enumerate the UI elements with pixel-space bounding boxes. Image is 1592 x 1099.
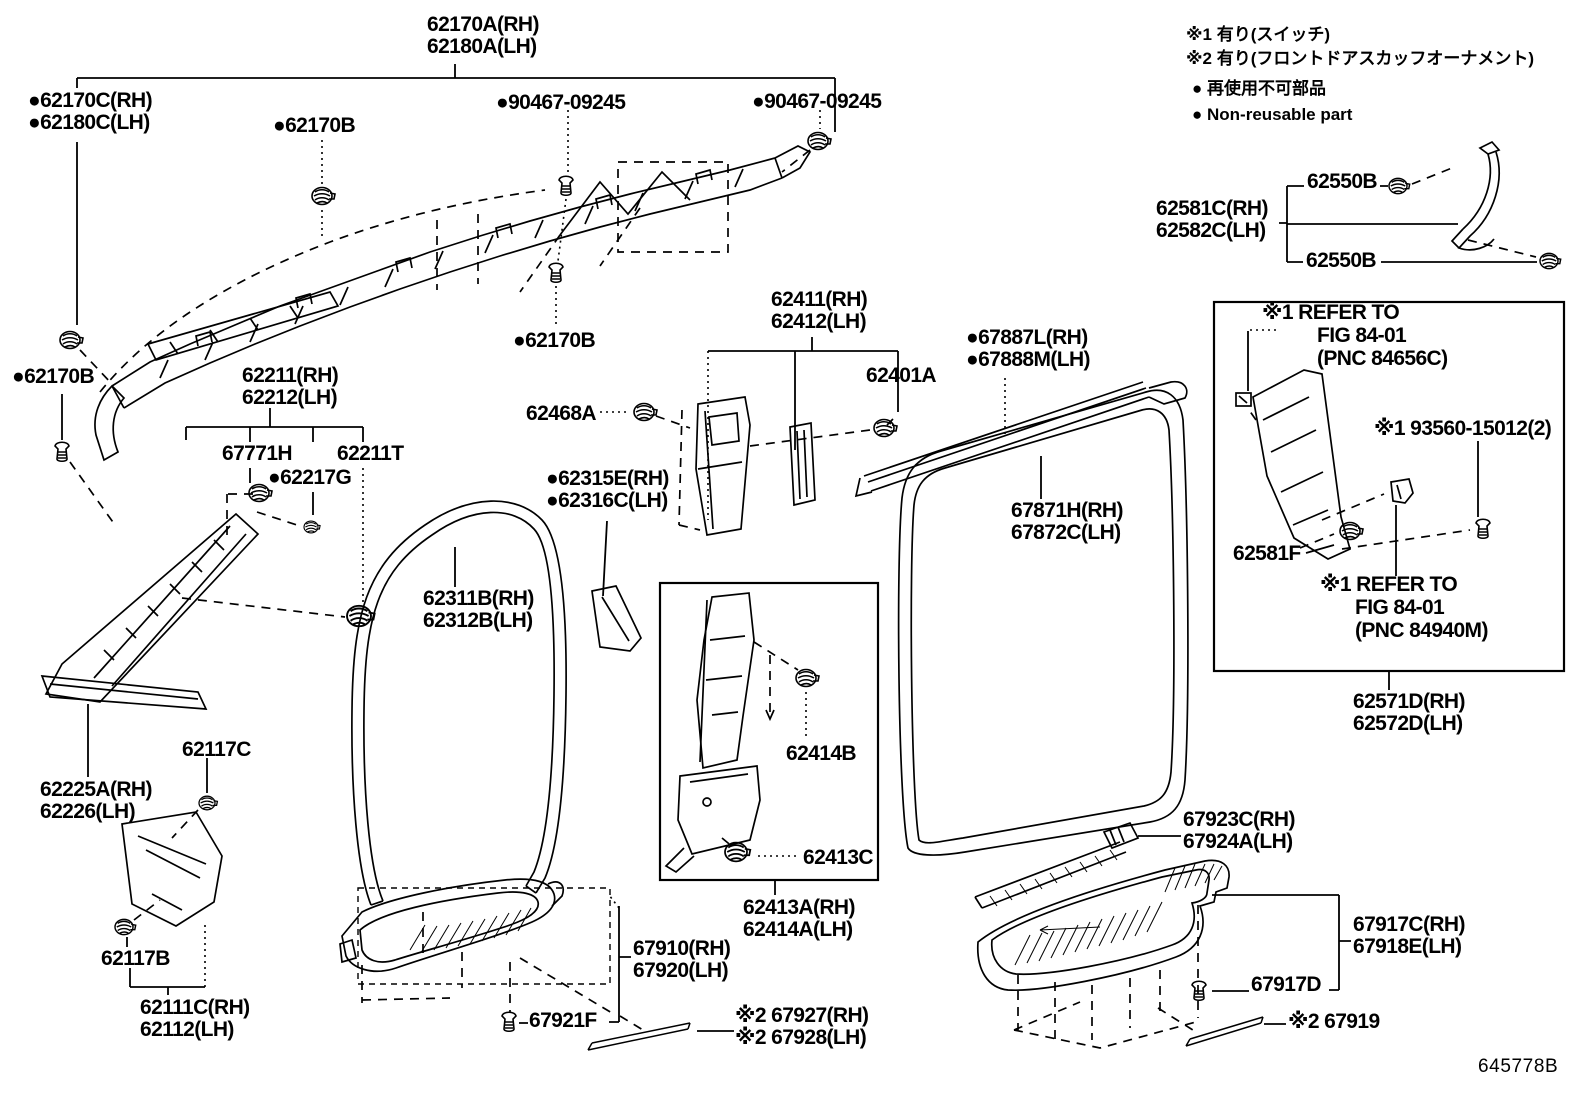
part-label-62211: 62211(RH) 62212(LH): [242, 365, 338, 409]
part-label-62225a: 62225A(RH) 62226(LH): [40, 779, 152, 823]
part-label-62117b: 62117B: [101, 948, 170, 970]
screw-icon: [549, 263, 563, 282]
grommet-clip-icon: [199, 796, 217, 810]
grommet-clip-icon: [312, 188, 335, 205]
front-door-opening-trim: [352, 501, 566, 905]
legend-note-note-jp: ● 再使用不可部品: [1192, 76, 1326, 102]
part-label-67921f: 67921F: [529, 1010, 597, 1032]
part-label-90467-left: ●90467-09245: [496, 92, 625, 114]
door-sill-strips: [588, 1017, 1263, 1050]
legend-note-note-switch: ※1 有り(スイッチ): [1186, 22, 1330, 48]
part-label-62581f: 62581F: [1233, 543, 1301, 565]
screw-icon: [1192, 981, 1206, 1000]
part-label-62111c: 62111C(RH) 62112(LH): [140, 997, 250, 1041]
part-label-62170a: 62170A(RH) 62180A(LH): [427, 14, 539, 58]
part-label-62413a: 62413A(RH) 62414A(LH): [743, 897, 855, 941]
grommet-clip-icon: [808, 133, 831, 150]
part-label-62315e: ●62315E(RH) ●62316C(LH): [546, 468, 669, 512]
part-label-67927: ※2 67927(RH) ※2 67928(LH): [735, 1005, 868, 1049]
part-label-67887l: ●67887L(RH) ●67888M(LH): [966, 327, 1090, 371]
part-label-62170b-left: ●62170B: [12, 366, 94, 388]
center-pillar-upper-trim: [696, 397, 815, 535]
center-pillar-lower-box: [660, 583, 878, 880]
grommet-clip-icon: [304, 521, 320, 533]
part-label-62211t: 62211T: [337, 443, 403, 465]
part-label-62581c: 62581C(RH) 62582C(LH): [1156, 198, 1268, 242]
part-label-62550b-top: 62550B: [1307, 171, 1377, 193]
screw-icon: [55, 442, 69, 461]
grommet-clip-icon: [874, 420, 897, 437]
part-label-refer1-1: ※1 REFER TO: [1262, 302, 1399, 324]
part-label-62170b-mid: ●62170B: [513, 330, 595, 352]
part-label-62117c: 62117C: [182, 739, 251, 761]
roof-side-garnish-assembly: [95, 146, 810, 460]
grommet-clip-icon: [1389, 178, 1410, 193]
legend-note-note-en: ● Non-reusable part: [1192, 102, 1352, 128]
grommet-clip-icon: [1340, 523, 1363, 540]
part-label-62311b: 62311B(RH) 62312B(LH): [423, 588, 534, 632]
leader-lines: [62, 64, 1537, 1031]
grommet-clip-icon: [60, 332, 83, 349]
part-label-62170b-top: ●62170B: [273, 115, 355, 137]
part-label-refer2-3: (PNC 84940M): [1355, 620, 1488, 642]
part-label-62411: 62411(RH) 62412(LH): [771, 289, 867, 333]
part-label-refer2-1: ※1 REFER TO: [1320, 574, 1457, 596]
part-label-67871h: 67871H(RH) 67872C(LH): [1011, 500, 1123, 544]
part-label-62170c: ●62170C(RH) ●62180C(LH): [28, 90, 152, 134]
screw-icon: [1476, 519, 1490, 538]
part-label-67910: 67910(RH) 67920(LH): [633, 938, 730, 982]
part-label-62571d: 62571D(RH) 62572D(LH): [1353, 691, 1465, 735]
grommet-clip-icon: [725, 843, 750, 862]
drawing-number: 645778B: [1478, 1056, 1558, 1078]
pillar-garnish-small: [592, 586, 641, 651]
part-label-67917c: 67917C(RH) 67918E(LH): [1353, 914, 1465, 958]
front-scuff-plate: [340, 879, 563, 971]
parts-diagram-page: 62170A(RH) 62180A(LH)●62170C(RH) ●62180C…: [0, 0, 1592, 1099]
legend-note-note-scuff: ※2 有り(フロントドアスカッフオーナメント): [1186, 46, 1534, 72]
part-label-refer1-2: FIG 84-01: [1317, 325, 1406, 347]
part-label-62217g: ●62217G: [268, 467, 351, 489]
quarter-trim-upper-piece: [1452, 142, 1499, 250]
screw-icon: [502, 1012, 516, 1031]
part-label-62414b: 62414B: [786, 743, 856, 765]
front-pillar-garnish: [42, 514, 258, 709]
part-label-67771h: 67771H: [222, 443, 292, 465]
rear-door-opening-trim: [856, 382, 1188, 855]
part-label-67923c: 67923C(RH) 67924A(LH): [1183, 809, 1295, 853]
part-label-90467-right: ●90467-09245: [752, 91, 881, 113]
grommet-clip-icon: [115, 919, 136, 934]
part-label-62550b-bottom: 62550B: [1306, 250, 1376, 272]
part-label-refer2-2: FIG 84-01: [1355, 597, 1444, 619]
screw-icon: [559, 176, 573, 195]
grommet-clip-icon: [796, 670, 819, 687]
part-label-93560: ※1 93560-15012(2): [1374, 418, 1551, 440]
part-label-62468a: 62468A: [526, 403, 596, 425]
part-label-62401a: 62401A: [866, 365, 936, 387]
grommet-clip-icon: [634, 404, 657, 421]
part-label-67917d: 67917D: [1251, 974, 1321, 996]
grommet-clip-icon: [1540, 253, 1561, 268]
part-label-62413c: 62413C: [803, 847, 873, 869]
part-label-refer1-3: (PNC 84656C): [1317, 348, 1448, 370]
part-label-67919: ※2 67919: [1288, 1011, 1380, 1033]
cowl-side-trim: [122, 812, 222, 926]
